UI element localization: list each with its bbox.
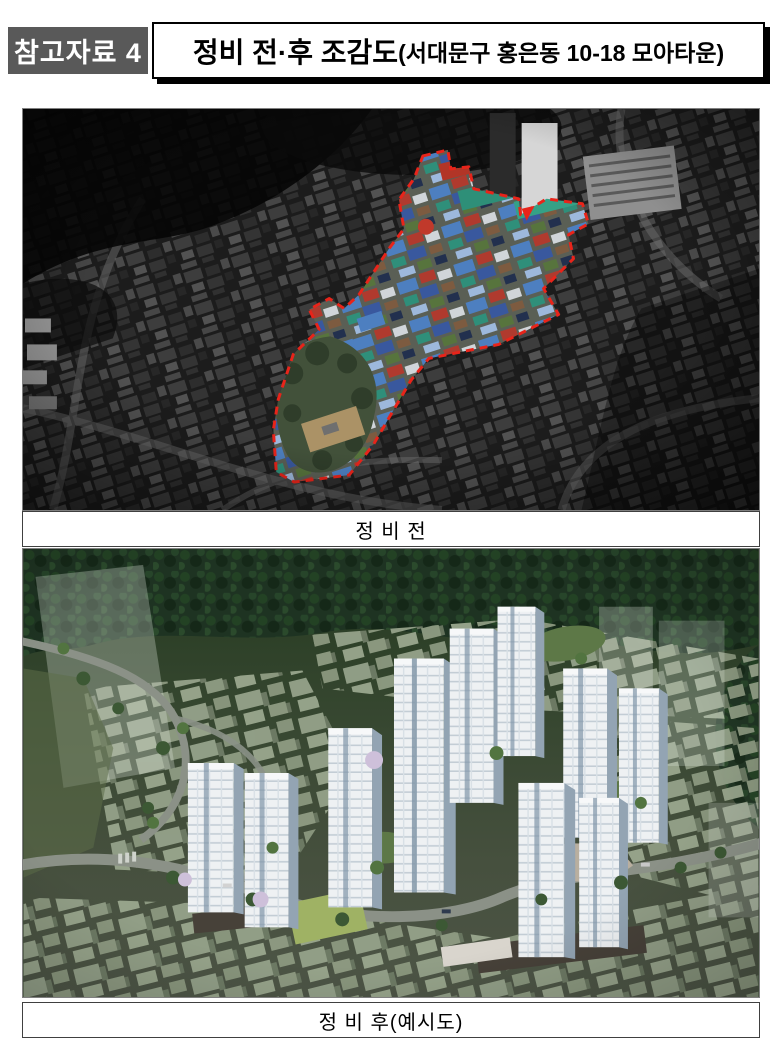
- page-title-location: (서대문구 홍은동 10-18 모아타운): [398, 34, 724, 68]
- reference-badge-label: 참고자료 4: [14, 31, 142, 70]
- figure-after: [22, 548, 760, 998]
- caption-before-label: 정 비 전: [355, 515, 426, 544]
- caption-after-label: 정 비 후(예시도): [319, 1006, 464, 1035]
- reference-badge: 참고자료 4: [8, 27, 148, 74]
- after-rendering-illustration: [23, 549, 759, 997]
- title-box: 정비 전·후 조감도(서대문구 홍은동 10-18 모아타운): [152, 22, 765, 79]
- page: 참고자료 4 정비 전·후 조감도(서대문구 홍은동 10-18 모아타운): [0, 0, 779, 1052]
- caption-after: 정 비 후(예시도): [22, 1002, 760, 1038]
- page-title: 정비 전·후 조감도: [193, 31, 398, 71]
- caption-before: 정 비 전: [22, 511, 760, 547]
- before-aerial-photo-illustration: [23, 109, 759, 510]
- figure-before: [22, 108, 760, 511]
